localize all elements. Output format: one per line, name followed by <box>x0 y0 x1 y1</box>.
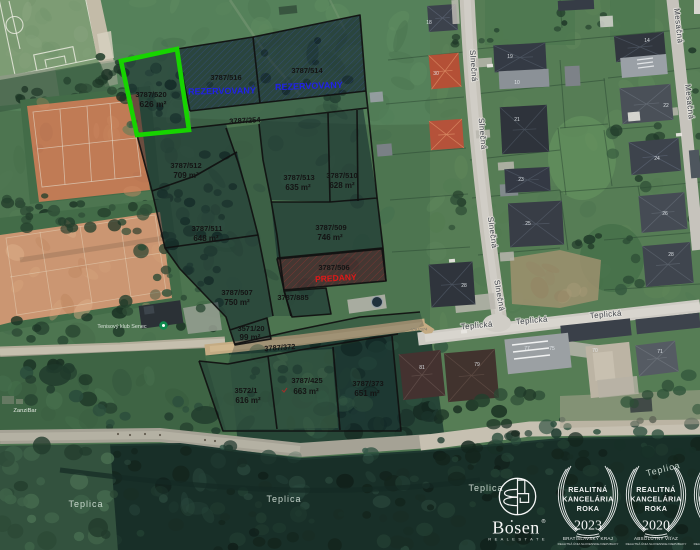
svg-text:750 m²: 750 m² <box>224 298 250 307</box>
svg-text:ZanziBar: ZanziBar <box>13 408 36 414</box>
svg-text:71: 71 <box>657 349 663 355</box>
svg-text:ABSOLÚTNY VÍťAZ: ABSOLÚTNY VÍťAZ <box>634 535 678 541</box>
svg-text:3572/1: 3572/1 <box>235 386 258 395</box>
svg-text:616 m²: 616 m² <box>235 396 261 405</box>
svg-text:28: 28 <box>668 252 674 258</box>
svg-text:22: 22 <box>663 103 669 109</box>
svg-text:10: 10 <box>514 80 520 86</box>
svg-text:Teplica: Teplica <box>68 499 103 509</box>
svg-text:21: 21 <box>514 117 520 123</box>
svg-text:ROKA: ROKA <box>645 504 668 513</box>
svg-text:23: 23 <box>518 177 524 183</box>
svg-text:3787/507: 3787/507 <box>221 288 252 297</box>
svg-text:18: 18 <box>426 20 432 26</box>
svg-text:Teplica: Teplica <box>468 483 503 493</box>
svg-text:®: ® <box>541 518 545 525</box>
svg-text:626 m²: 626 m² <box>140 99 167 109</box>
svg-text:BRATISLAVSKÝ KRAJ: BRATISLAVSKÝ KRAJ <box>563 535 613 541</box>
svg-text:2020: 2020 <box>642 519 670 534</box>
svg-text:28: 28 <box>461 283 467 289</box>
svg-text:651 m²: 651 m² <box>354 389 380 398</box>
svg-text:3787/511: 3787/511 <box>192 224 223 233</box>
svg-text:75: 75 <box>549 346 555 352</box>
svg-text:3787/254: 3787/254 <box>229 115 262 126</box>
svg-text:628 m²: 628 m² <box>329 181 355 190</box>
svg-text:77: 77 <box>524 346 530 352</box>
svg-text:R E A L E S T A T E: R E A L E S T A T E <box>488 537 546 542</box>
svg-text:REALITNÁ: REALITNÁ <box>636 485 676 494</box>
svg-text:Teplica: Teplica <box>266 494 301 504</box>
svg-text:635 m²: 635 m² <box>285 183 311 192</box>
svg-text:746 m²: 746 m² <box>317 233 343 242</box>
svg-text:81: 81 <box>419 365 425 371</box>
svg-text:3787/425: 3787/425 <box>291 376 322 385</box>
svg-text:709 m²: 709 m² <box>173 171 199 180</box>
svg-text:REALITNÁ ÚNIA SLOVENSKEJ REPUB: REALITNÁ ÚNIA SLOVENSKEJ REPUBLIKY <box>558 541 619 546</box>
svg-text:ROKA: ROKA <box>577 504 600 513</box>
svg-text:3787/506: 3787/506 <box>318 263 349 272</box>
svg-text:3787/885: 3787/885 <box>277 293 308 302</box>
svg-text:REALITNÁ ÚNIA SLOVENSKEJ REPUB: REALITNÁ ÚNIA SLOVENSKEJ REPUBLIKY <box>694 541 700 546</box>
svg-text:3787/509: 3787/509 <box>315 223 346 232</box>
svg-text:26: 26 <box>662 211 668 217</box>
svg-text:KANCELÁRIA: KANCELÁRIA <box>630 495 682 504</box>
svg-text:3787/516: 3787/516 <box>210 73 241 82</box>
svg-text:Bosen: Bosen <box>492 518 540 538</box>
svg-text:14: 14 <box>644 38 650 44</box>
svg-text:REALITNÁ ÚNIA SLOVENSKEJ REPUB: REALITNÁ ÚNIA SLOVENSKEJ REPUBLIKY <box>626 541 687 546</box>
svg-text:KANCELÁRIA: KANCELÁRIA <box>562 495 614 504</box>
svg-text:2023: 2023 <box>574 519 602 534</box>
svg-text:3787/373: 3787/373 <box>352 379 383 388</box>
svg-text:648 m²: 648 m² <box>193 234 219 243</box>
svg-text:663 m²: 663 m² <box>293 387 319 396</box>
svg-text:25: 25 <box>525 221 531 227</box>
svg-text:79: 79 <box>474 362 480 368</box>
svg-text:REZERVOVANÝ: REZERVOVANÝ <box>188 84 256 96</box>
svg-text:REALITNÁ: REALITNÁ <box>568 485 608 494</box>
svg-text:99 m²: 99 m² <box>240 333 261 342</box>
svg-text:3787/513: 3787/513 <box>283 173 314 182</box>
svg-text:3787/514: 3787/514 <box>291 66 323 75</box>
svg-text:24: 24 <box>654 156 660 162</box>
svg-text:3787/510: 3787/510 <box>326 171 357 180</box>
svg-text:PREDANÝ: PREDANÝ <box>315 271 357 284</box>
svg-text:3571/20: 3571/20 <box>237 324 264 333</box>
svg-text:19: 19 <box>507 54 513 60</box>
svg-text:3787/520: 3787/520 <box>135 90 166 99</box>
svg-text:Tenisový klub Senec: Tenisový klub Senec <box>97 324 146 330</box>
svg-text:30: 30 <box>433 71 439 77</box>
svg-text:3787/512: 3787/512 <box>170 161 201 170</box>
svg-text:70: 70 <box>592 348 598 354</box>
